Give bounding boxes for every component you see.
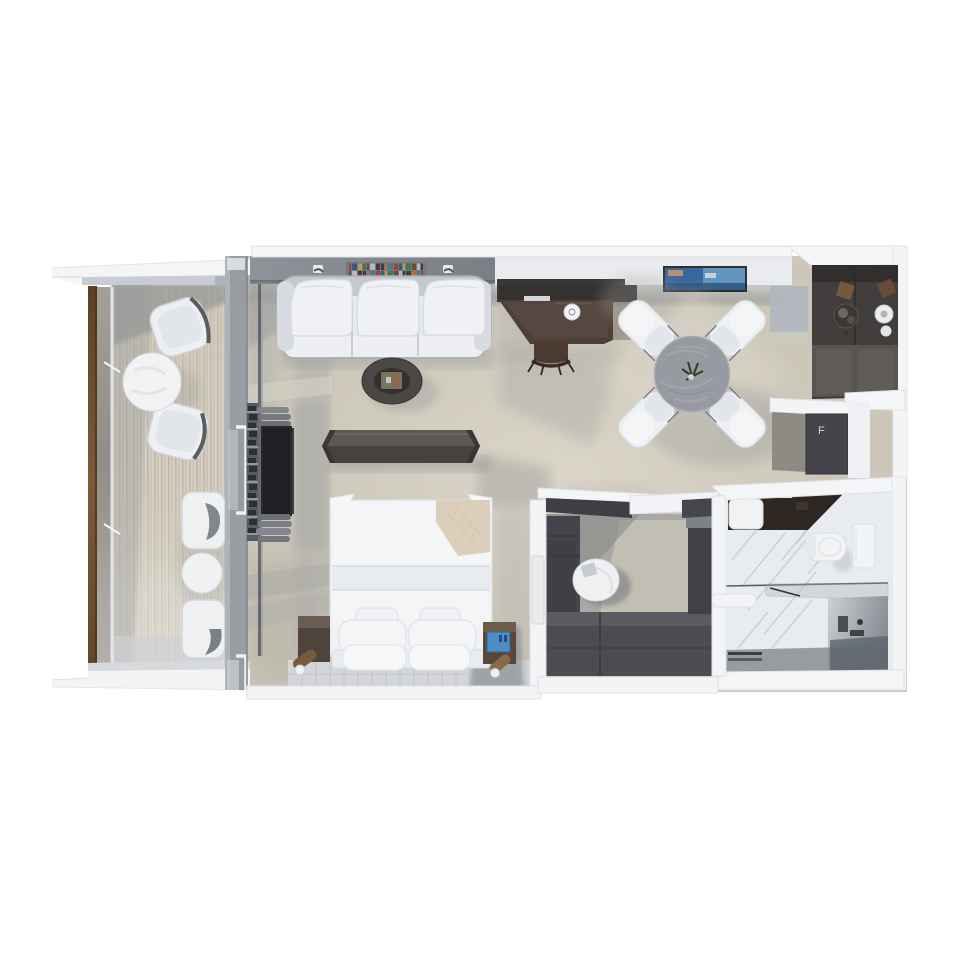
svg-text:F: F [818, 425, 825, 437]
